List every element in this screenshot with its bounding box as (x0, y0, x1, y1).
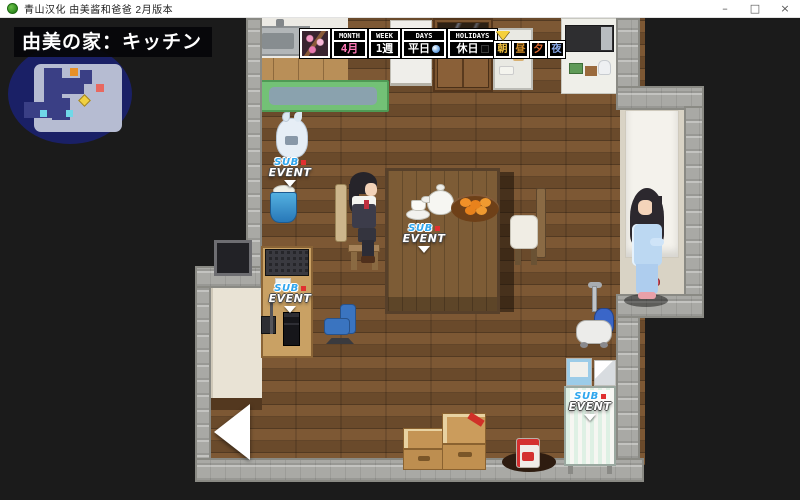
pajama-pants (636, 264, 658, 294)
days-header: DAYS (404, 31, 444, 42)
month-header: MONTH (334, 31, 365, 42)
microwave-panel (601, 27, 612, 50)
rack-prism (594, 360, 616, 386)
event-label: EVENT (396, 234, 452, 244)
minimap-npc-dot-cyan (40, 110, 47, 117)
office-chair (322, 304, 360, 348)
teapot (427, 190, 454, 215)
rack-legs (568, 466, 573, 474)
cabinets (248, 58, 348, 82)
time-slot-evening: 夕 (530, 41, 547, 58)
faucet (276, 19, 284, 27)
garbage-bag-label (285, 136, 298, 145)
calendar-week: WEEK 1週 (369, 29, 400, 58)
minimap-corridor (80, 70, 92, 84)
pajama-slippers (638, 292, 656, 299)
close-button[interactable]: × (770, 0, 800, 18)
sub-event-marker-desk[interactable]: SUB EVENT (262, 284, 318, 313)
girl-face (365, 183, 377, 196)
minimize-button[interactable]: – (710, 0, 740, 18)
days-value: 平日 (404, 42, 444, 56)
wall (195, 286, 211, 472)
box-handle (458, 452, 472, 457)
pajama-girl-face (638, 200, 653, 215)
calendar-month: MONTH 4月 (332, 29, 367, 58)
window-titlebar: 青山汉化 由美酱和爸爸 2月版本 – □ × (0, 0, 800, 18)
girl-shoes (361, 256, 375, 263)
marker-pointer-icon (284, 180, 296, 187)
chair-right-cushion (510, 215, 538, 249)
days-text: 平日 (408, 42, 430, 56)
minimap-npc-dot-cyan (66, 110, 73, 117)
sub-event-marker-trash[interactable]: SUB EVENT (262, 158, 318, 187)
month-value: 4月 (334, 42, 365, 56)
chair-right-legs (515, 249, 521, 265)
npc-pajama-girl[interactable] (628, 186, 666, 302)
cart-item-brown (585, 66, 597, 76)
marker-pointer-icon (284, 306, 296, 313)
app-icon (7, 3, 18, 14)
game-window: SUB EVENT SUB EVENT SUB EVENT SUB EVENT … (0, 0, 800, 500)
box-handle (418, 456, 430, 461)
girl-tie (364, 200, 369, 209)
vacuum-pipe (592, 286, 597, 312)
holidays-text: 休日 (457, 42, 479, 56)
holiday-slot-icon (481, 45, 489, 53)
left-doorway (211, 288, 262, 402)
desk-printer (261, 316, 276, 334)
sink-basin (262, 33, 294, 49)
active-time-pointer-icon (496, 31, 510, 40)
teapot-spout (421, 196, 430, 203)
pantry-shelf-food (499, 66, 514, 75)
marker-pointer-icon (584, 414, 596, 421)
event-label: EVENT (562, 402, 618, 412)
weekday-orb-icon (432, 45, 440, 53)
teapot-lid (436, 184, 445, 191)
calendar-holidays: HOLIDAYS 休日 (448, 29, 497, 58)
window-title: 青山汉化 由美酱和爸爸 2月版本 (24, 1, 173, 16)
desk-pc-tower (283, 312, 300, 346)
cart-item-green (569, 63, 583, 74)
rack-glass-box (566, 358, 592, 386)
wall-tv (214, 240, 252, 276)
event-dot (301, 286, 306, 291)
cardboard-box (442, 444, 486, 470)
calendar-days: DAYS 平日 (402, 29, 446, 58)
garbage-bag-tie (282, 112, 290, 122)
event-label: EVENT (262, 294, 318, 304)
office-chair-legs (326, 338, 354, 344)
event-dot (301, 160, 306, 165)
cola-can-logo (522, 452, 534, 461)
trash-bin[interactable] (270, 192, 297, 223)
wall (246, 18, 262, 272)
food-orange (460, 198, 471, 207)
minimap-npc-dot-red (96, 84, 104, 92)
marker-pointer-icon (418, 246, 430, 253)
chair-left-back (335, 184, 347, 242)
holidays-header: HOLIDAYS (450, 31, 495, 42)
cart-item-bag (598, 60, 611, 75)
vacuum-body (576, 320, 612, 344)
location-label: 由美の家：キッチン (14, 27, 212, 57)
wall (616, 316, 640, 460)
event-dot (435, 226, 440, 231)
time-slot-morning: 朝 (494, 41, 511, 58)
time-slot-noon: 昼 (512, 41, 529, 58)
week-header: WEEK (371, 31, 398, 42)
minimap-npc-dot-orange (70, 68, 78, 76)
event-dot (601, 394, 606, 399)
desk-keyboard-unit (265, 249, 309, 276)
pajama-sleeve (650, 238, 664, 246)
exit-arrow[interactable] (214, 404, 250, 460)
npc-seated-girl[interactable] (348, 170, 382, 264)
wall (684, 106, 704, 318)
sub-event-marker-table[interactable]: SUB EVENT (396, 224, 452, 253)
cardboard-box (403, 428, 443, 449)
wall (616, 18, 640, 92)
vacuum-wheels (580, 342, 588, 348)
holidays-value: 休日 (450, 42, 495, 56)
maximize-button[interactable]: □ (740, 0, 770, 18)
sub-event-marker-rack[interactable]: SUB EVENT (562, 392, 618, 421)
event-label: EVENT (262, 168, 318, 178)
food-plate (451, 194, 499, 222)
month-art-icon (300, 29, 330, 58)
time-slot-night: 夜 (548, 41, 565, 58)
green-table-top (269, 87, 377, 105)
office-chair-seat (324, 318, 350, 335)
vacuum-cleaner (574, 280, 614, 350)
week-value: 1週 (371, 42, 398, 56)
